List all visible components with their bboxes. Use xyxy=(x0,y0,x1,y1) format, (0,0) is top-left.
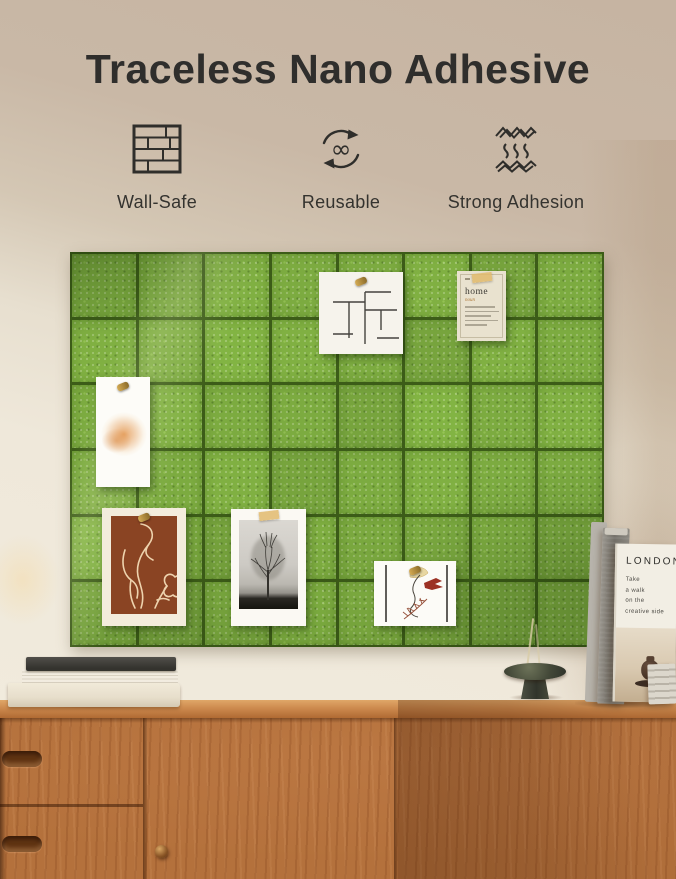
svg-text:∞: ∞ xyxy=(331,135,352,164)
tree-photo-card xyxy=(231,509,306,626)
terracotta-artwork xyxy=(111,516,177,614)
definition-text-line xyxy=(465,311,499,313)
drawer-seam xyxy=(0,804,143,807)
cabinet-left-shadow xyxy=(0,718,6,879)
felt-tile xyxy=(72,320,136,383)
felt-tile xyxy=(72,254,136,317)
felt-tile xyxy=(272,451,336,514)
feature-label: Reusable xyxy=(271,192,411,213)
definition-text-line xyxy=(465,306,495,308)
felt-tile xyxy=(538,320,602,383)
cabinet-shadow-overlay xyxy=(398,700,676,879)
feature-label: Wall-Safe xyxy=(87,192,227,213)
figure-line-art-card xyxy=(102,508,186,626)
felt-tile xyxy=(339,451,403,514)
felt-tile xyxy=(472,385,536,448)
felt-tile xyxy=(139,320,203,383)
drawer-handle xyxy=(2,836,42,852)
book-pages-edge xyxy=(22,669,178,684)
felt-tile xyxy=(472,451,536,514)
feature-reusable: ∞ Reusable xyxy=(271,118,411,213)
felt-tile xyxy=(272,385,336,448)
tree-photograph xyxy=(239,520,298,609)
felt-tile xyxy=(405,385,469,448)
felt-tile xyxy=(205,320,269,383)
london-book-subtitle: Take a walk on the creative side xyxy=(625,575,676,618)
page-title: Traceless Nano Adhesive xyxy=(0,46,676,93)
felt-tile xyxy=(205,254,269,317)
stone-bowl xyxy=(504,663,566,680)
definition-text-line xyxy=(465,315,491,317)
felt-tile xyxy=(139,254,203,317)
felt-tile xyxy=(538,254,602,317)
home-card-frame: home noun xyxy=(460,274,503,338)
feature-wall-safe: Wall-Safe xyxy=(87,118,227,213)
definition-text-line xyxy=(465,320,498,322)
felt-tile xyxy=(205,385,269,448)
home-card-part-of-speech: noun xyxy=(465,298,499,303)
bird-face-line-art-card xyxy=(374,561,456,626)
geometric-line-art-card xyxy=(319,272,403,354)
feature-strong-adhesion: Strong Adhesion xyxy=(416,118,616,213)
drawer-handle xyxy=(2,751,42,767)
brick-wall-icon xyxy=(87,118,227,180)
cream-book xyxy=(8,683,180,707)
reuse-cycle-infinity-icon: ∞ xyxy=(271,118,411,180)
definition-text-line xyxy=(465,324,487,326)
felt-tile xyxy=(405,451,469,514)
adhesion-waves-icon xyxy=(416,118,616,180)
felt-tile xyxy=(472,517,536,580)
push-pin-icon xyxy=(116,381,130,392)
feature-label: Strong Adhesion xyxy=(416,192,616,213)
door-knob xyxy=(155,845,168,858)
felt-tile xyxy=(538,385,602,448)
cabinet-panel-seam xyxy=(143,718,147,879)
felt-tile xyxy=(472,582,536,645)
mountain-watercolor-card xyxy=(96,377,150,487)
home-card-word: home xyxy=(465,287,499,297)
product-image: Traceless Nano Adhesive Wall-Safe ∞ R xyxy=(0,0,676,879)
home-definition-card: home noun xyxy=(457,271,506,341)
felt-tile xyxy=(205,451,269,514)
dark-book xyxy=(26,657,176,671)
home-card-corner-mark xyxy=(465,278,470,280)
london-book-title: LONDON xyxy=(626,556,676,568)
felt-tile xyxy=(339,385,403,448)
paper-stack xyxy=(647,664,676,705)
felt-tile xyxy=(538,451,602,514)
